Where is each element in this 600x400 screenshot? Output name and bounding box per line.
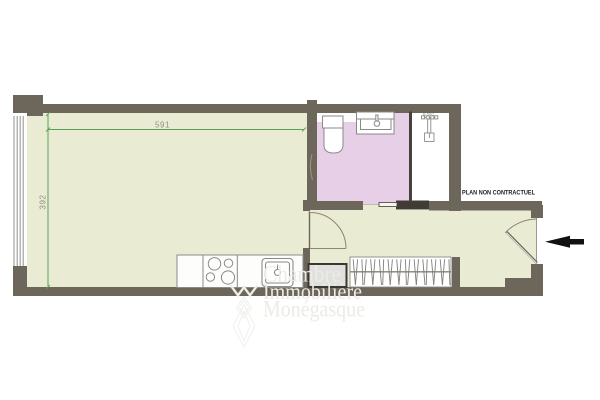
svg-text:Monégasque: Monégasque (263, 297, 365, 322)
svg-text:392: 392 (39, 194, 48, 209)
svg-text:PLAN NON CONTRACTUEL: PLAN NON CONTRACTUEL (462, 190, 535, 197)
svg-text:591: 591 (155, 121, 170, 130)
